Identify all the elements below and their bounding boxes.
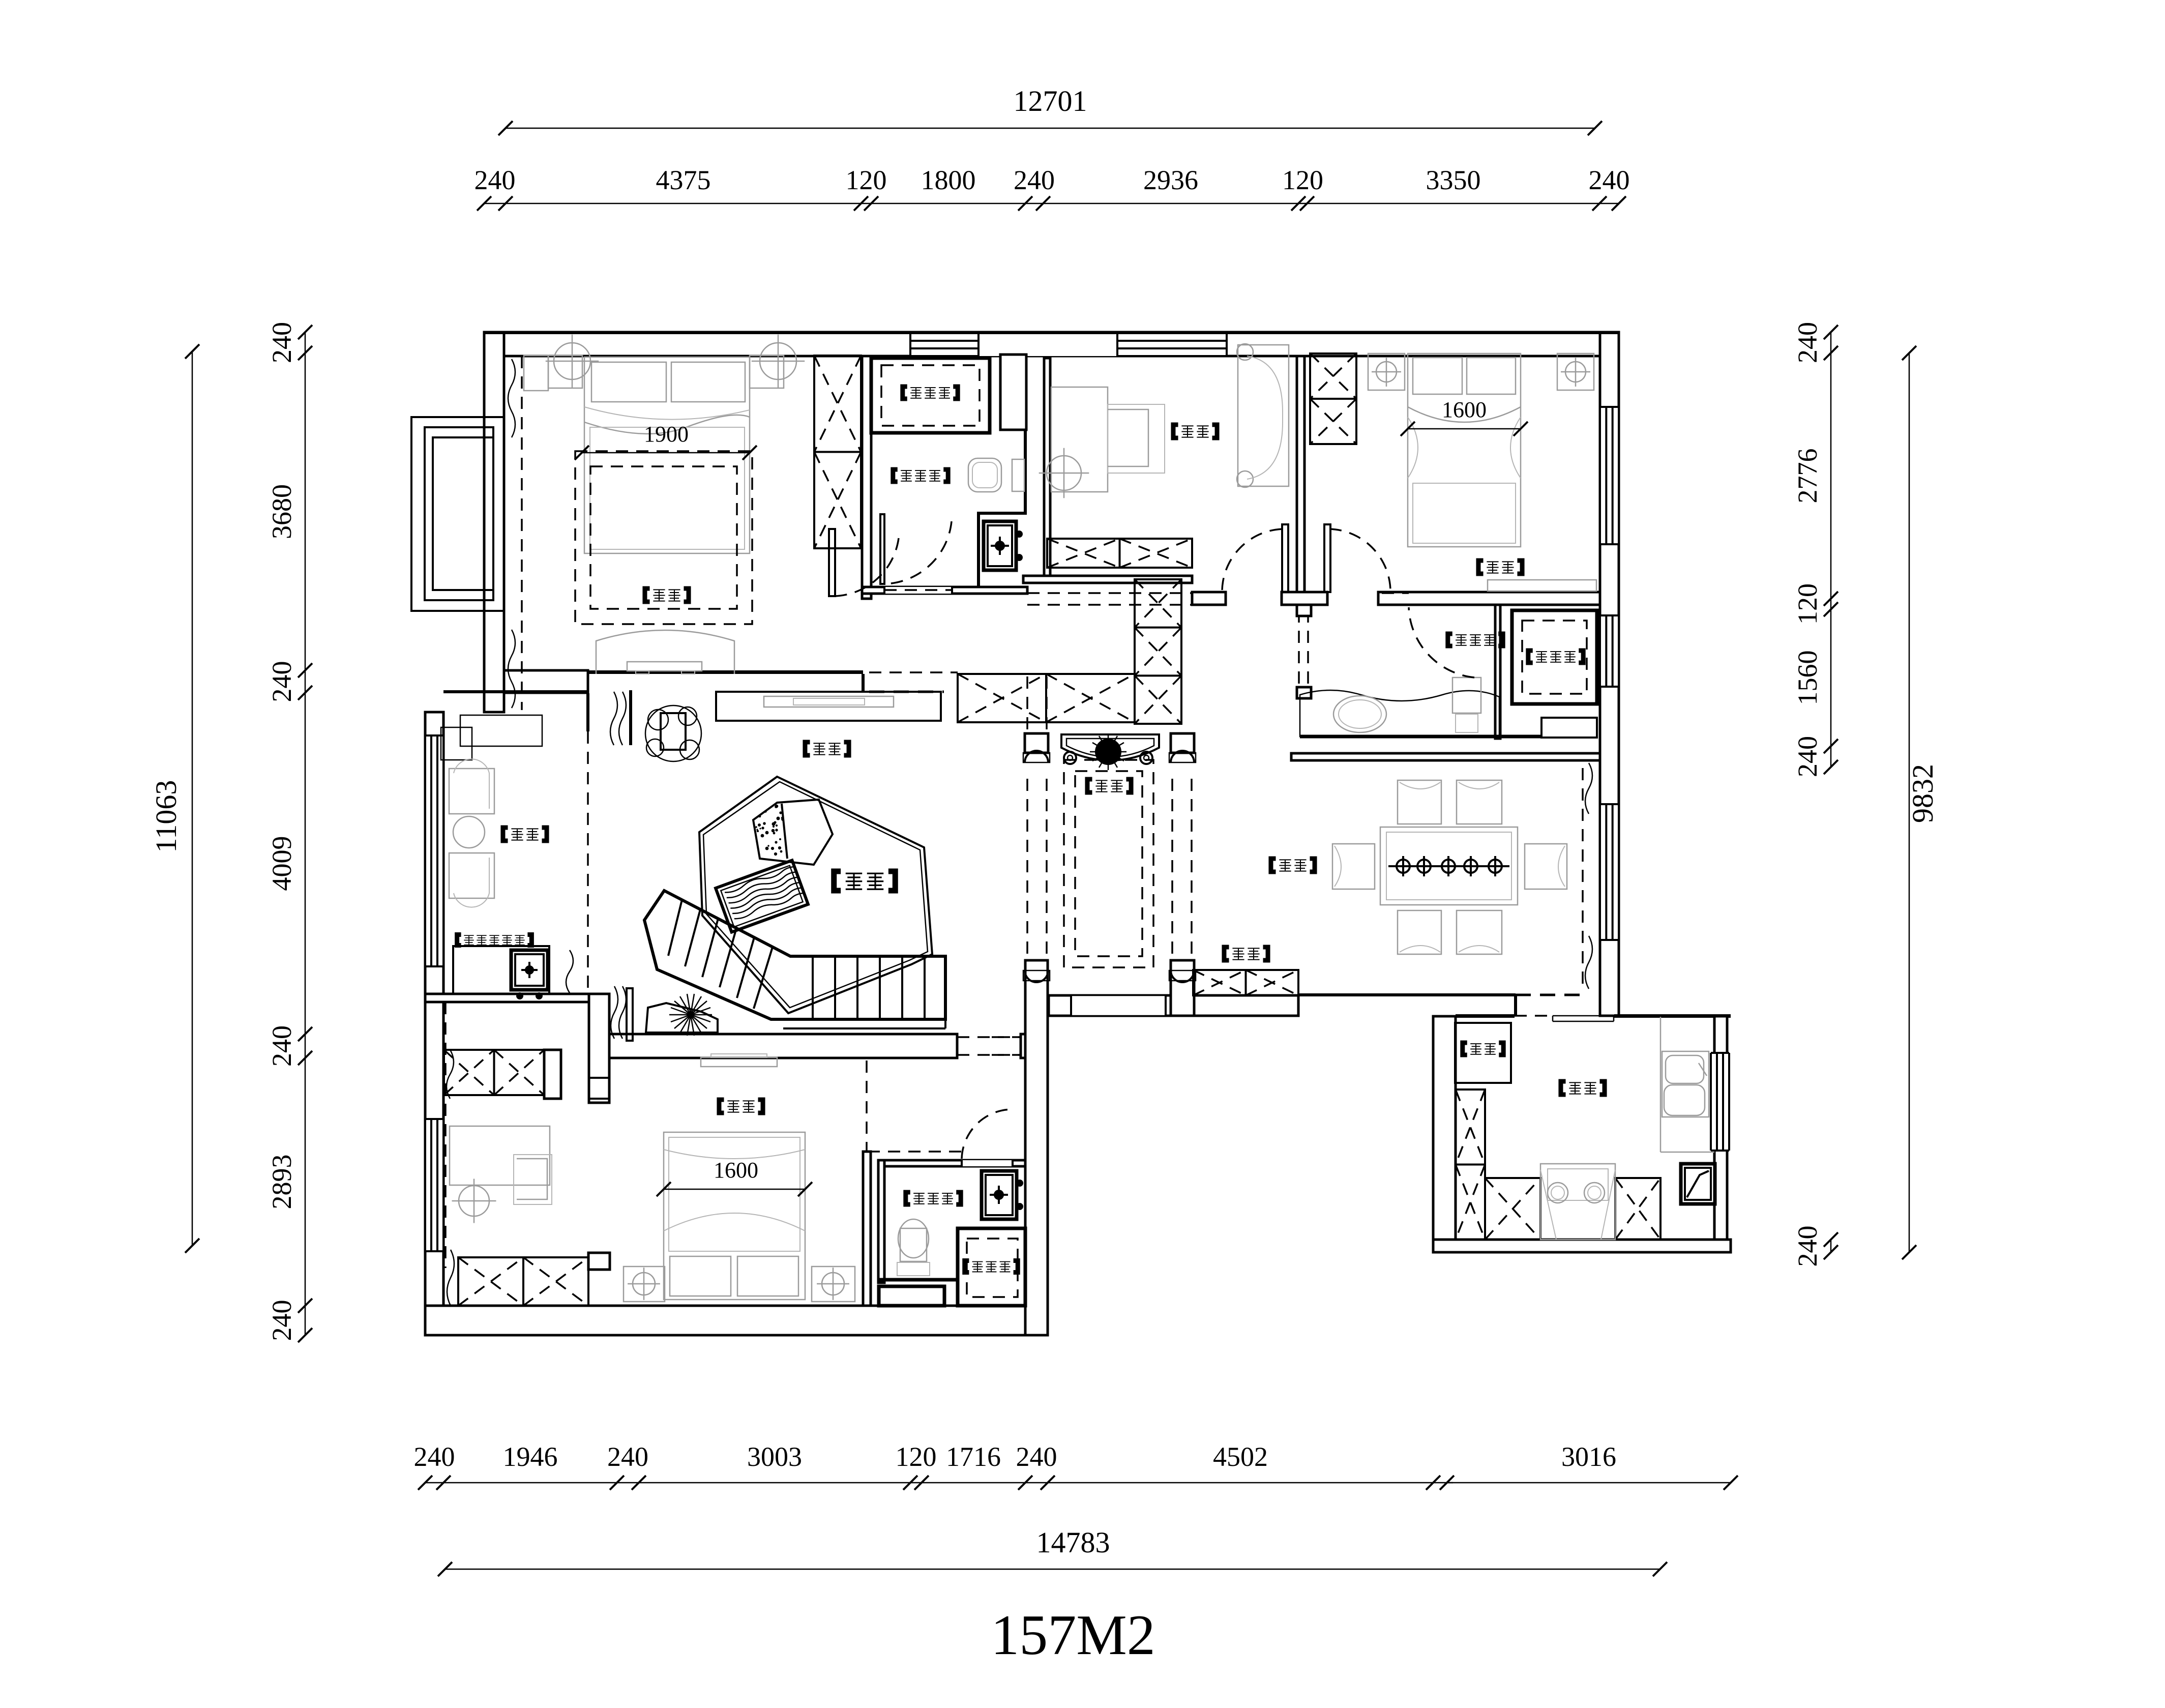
svg-text:240: 240 [266,1025,297,1067]
svg-text:240: 240 [1016,1441,1057,1472]
svg-text:1600: 1600 [1442,397,1487,422]
svg-text:1800: 1800 [921,165,976,195]
svg-text:120: 120 [896,1441,937,1472]
svg-text:240: 240 [266,1300,297,1341]
svg-text:2893: 2893 [266,1155,297,1210]
svg-text:240: 240 [1014,165,1055,195]
svg-text:240: 240 [1792,736,1823,777]
svg-text:120: 120 [1282,165,1323,195]
svg-text:240: 240 [1792,322,1823,363]
svg-text:1560: 1560 [1792,651,1823,705]
svg-text:3680: 3680 [266,484,297,539]
svg-text:120: 120 [846,165,887,195]
svg-text:240: 240 [474,165,516,195]
svg-text:4375: 4375 [656,165,711,195]
svg-text:240: 240 [1589,165,1630,195]
svg-text:2776: 2776 [1792,449,1823,504]
svg-text:11063: 11063 [150,780,183,853]
svg-text:240: 240 [607,1441,648,1472]
svg-text:14783: 14783 [1036,1526,1110,1559]
svg-text:240: 240 [1792,1226,1823,1267]
svg-text:240: 240 [266,322,297,363]
svg-text:240: 240 [414,1441,455,1472]
svg-text:1900: 1900 [644,422,689,447]
svg-text:12701: 12701 [1014,84,1087,117]
svg-text:3016: 3016 [1561,1441,1616,1472]
svg-text:3003: 3003 [747,1441,802,1472]
svg-text:157M2: 157M2 [991,1604,1155,1667]
svg-text:4502: 4502 [1213,1441,1268,1472]
svg-text:240: 240 [266,661,297,702]
svg-text:3350: 3350 [1426,165,1481,195]
svg-text:1716: 1716 [946,1441,1001,1472]
svg-text:1600: 1600 [714,1158,758,1183]
svg-text:4009: 4009 [266,836,297,891]
svg-text:120: 120 [1792,583,1823,625]
svg-text:2936: 2936 [1143,165,1198,195]
svg-text:9832: 9832 [1906,764,1939,823]
svg-text:1946: 1946 [503,1441,558,1472]
